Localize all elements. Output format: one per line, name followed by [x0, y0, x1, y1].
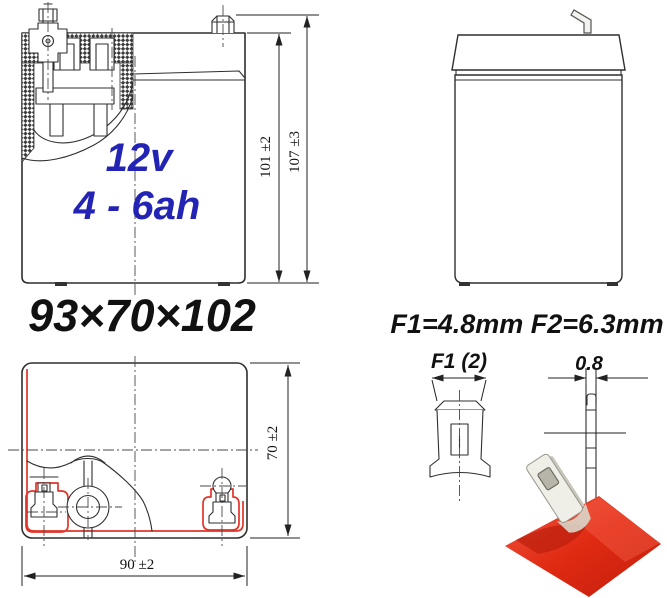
side-view-drawing: [452, 10, 625, 286]
terminal-sizes-title: F1=4.8mm F2=6.3mm: [390, 309, 663, 339]
terminal-front-detail: F1 (2): [430, 350, 490, 503]
front-view-drawing: 101 ±2 107 ±3 12v 4 - 6ah: [22, 2, 319, 298]
voltage-label: 12v: [106, 136, 175, 180]
total-height-dimension: 107 ±3: [287, 131, 303, 173]
overall-size-label: 93×70×102: [28, 290, 256, 341]
diagram-svg: 101 ±2 107 ±3 12v 4 - 6ah 93×70×102: [0, 0, 667, 598]
terminal-tab-outline: [571, 10, 591, 33]
width-dimension: 90 ±2: [120, 557, 154, 573]
terminal-width-label: F1 (2): [431, 350, 487, 373]
case-height-dimension: 101 ±2: [258, 136, 274, 178]
top-view-drawing: 70 ±2 90 ±2: [8, 356, 300, 586]
depth-dimension: 70 ±2: [265, 426, 281, 460]
terminal-photo: [505, 450, 661, 597]
battery-dimension-diagram: 101 ±2 107 ±3 12v 4 - 6ah 93×70×102: [0, 0, 667, 598]
capacity-label: 4 - 6ah: [73, 184, 201, 228]
terminal-thickness-label: 0.8: [575, 353, 604, 375]
